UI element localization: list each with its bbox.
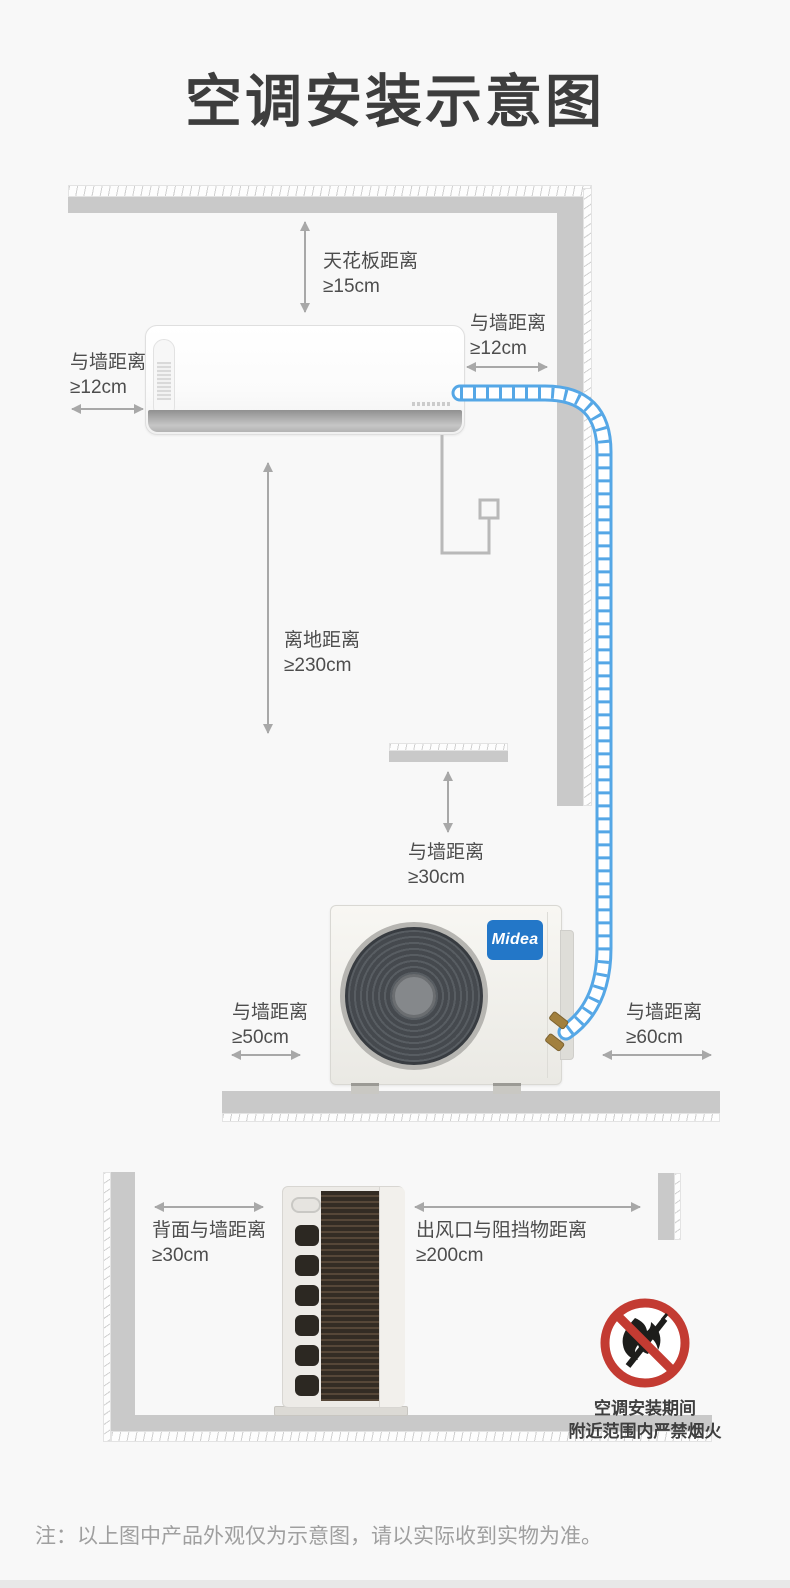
no-fire-warning-text: 空调安装期间 附近范围内严禁烟火 bbox=[535, 1398, 755, 1444]
indoor-unit-side-grille bbox=[153, 339, 175, 418]
ceiling-distance-label: 天花板距离 ≥15cm bbox=[323, 249, 418, 299]
outdoor-right-wall-arrow bbox=[603, 1054, 711, 1056]
label-value: ≥12cm bbox=[70, 375, 146, 400]
label-value: ≥200cm bbox=[416, 1243, 587, 1268]
outdoor-unit-side-view bbox=[282, 1186, 404, 1408]
indoor-left-wall-arrow bbox=[72, 408, 143, 410]
fan-hub bbox=[392, 974, 436, 1018]
bottom-left-wall bbox=[111, 1172, 135, 1430]
side-vent bbox=[295, 1285, 319, 1306]
outdoor-top-wall-arrow bbox=[447, 772, 449, 832]
floor-height-arrow bbox=[267, 463, 269, 733]
back-wall-distance-label: 背面与墙距离 ≥30cm bbox=[152, 1218, 266, 1268]
outdoor-unit-foot bbox=[493, 1083, 521, 1094]
obstacle-bar bbox=[658, 1173, 674, 1240]
label-text: 离地距离 bbox=[284, 628, 360, 653]
warning-line-1: 空调安装期间 bbox=[535, 1398, 755, 1421]
ceiling-distance-arrow bbox=[304, 222, 306, 312]
midea-logo-text: Midea bbox=[492, 931, 539, 949]
label-text: 与墙距离 bbox=[626, 1000, 702, 1025]
label-text: 天花板距离 bbox=[323, 249, 418, 274]
label-text: 出风口与阻挡物距离 bbox=[416, 1218, 587, 1243]
power-cord bbox=[442, 435, 489, 553]
label-value: ≥60cm bbox=[626, 1025, 702, 1050]
label-value: ≥12cm bbox=[470, 336, 546, 361]
side-unit-handle bbox=[291, 1197, 321, 1213]
outdoor-unit: Midea bbox=[330, 905, 562, 1085]
outdoor-unit-side-panel bbox=[560, 930, 574, 1060]
indoor-right-wall-label: 与墙距离 ≥12cm bbox=[470, 311, 546, 361]
outdoor-unit-panel-seam bbox=[547, 912, 548, 1078]
overhang-wall bbox=[389, 751, 508, 762]
midea-logo: Midea bbox=[487, 920, 543, 960]
page-bottom-edge bbox=[0, 1580, 790, 1588]
label-text: 与墙距离 bbox=[408, 840, 484, 865]
side-unit-right-panel bbox=[379, 1187, 405, 1407]
outdoor-platform-hatch-strip bbox=[222, 1113, 720, 1122]
page-title: 空调安装示意图 bbox=[0, 56, 790, 138]
ceiling bbox=[68, 197, 583, 213]
right-wall bbox=[557, 197, 583, 806]
obstacle-bar-hatch-strip bbox=[674, 1173, 681, 1240]
indoor-unit-print bbox=[412, 402, 452, 406]
indoor-unit bbox=[145, 325, 465, 435]
bottom-wall-hatch-strip bbox=[103, 1172, 111, 1442]
outdoor-left-wall-arrow bbox=[232, 1054, 300, 1056]
back-wall-distance-arrow bbox=[155, 1206, 263, 1208]
floor-height-label: 离地距离 ≥230cm bbox=[284, 628, 360, 678]
outdoor-right-wall-label: 与墙距离 ≥60cm bbox=[626, 1000, 702, 1050]
fan-grille-icon bbox=[340, 922, 488, 1070]
outlet-distance-label: 出风口与阻挡物距离 ≥200cm bbox=[416, 1218, 587, 1268]
condenser-coil bbox=[321, 1191, 379, 1401]
side-vent bbox=[295, 1315, 319, 1336]
side-vent bbox=[295, 1375, 319, 1396]
outdoor-platform bbox=[222, 1091, 720, 1113]
label-text: 背面与墙距离 bbox=[152, 1218, 266, 1243]
outlet-distance-arrow bbox=[415, 1206, 640, 1208]
indoor-unit-bottom-band bbox=[148, 410, 462, 432]
no-fire-icon bbox=[595, 1293, 695, 1393]
side-vent bbox=[295, 1345, 319, 1366]
label-text: 与墙距离 bbox=[232, 1000, 308, 1025]
label-value: ≥30cm bbox=[152, 1243, 266, 1268]
warning-line-2: 附近范围内严禁烟火 bbox=[535, 1421, 755, 1444]
label-value: ≥50cm bbox=[232, 1025, 308, 1050]
overhang-hatch-strip bbox=[389, 743, 508, 751]
indoor-right-wall-arrow bbox=[467, 366, 547, 368]
label-value: ≥15cm bbox=[323, 274, 418, 299]
outdoor-left-wall-label: 与墙距离 ≥50cm bbox=[232, 1000, 308, 1050]
footnote: 注：以上图中产品外观仅为示意图，请以实际收到实物为准。 bbox=[35, 1520, 602, 1550]
outdoor-top-wall-label: 与墙距离 ≥30cm bbox=[408, 840, 484, 890]
side-vent bbox=[295, 1225, 319, 1246]
outdoor-unit-foot bbox=[351, 1083, 379, 1094]
label-value: ≥230cm bbox=[284, 653, 360, 678]
power-plug-icon bbox=[480, 500, 498, 518]
label-text: 与墙距离 bbox=[470, 311, 546, 336]
indoor-left-wall-label: 与墙距离 ≥12cm bbox=[70, 350, 146, 400]
label-text: 与墙距离 bbox=[70, 350, 146, 375]
side-vent bbox=[295, 1255, 319, 1276]
right-wall-hatch-strip bbox=[583, 188, 592, 806]
installation-diagram-page: 空调安装示意图 天花板距离 ≥15cm 与墙距离 ≥12cm 与墙距离 ≥12c… bbox=[0, 0, 790, 1588]
ceiling-hatch-strip bbox=[68, 185, 592, 197]
label-value: ≥30cm bbox=[408, 865, 484, 890]
